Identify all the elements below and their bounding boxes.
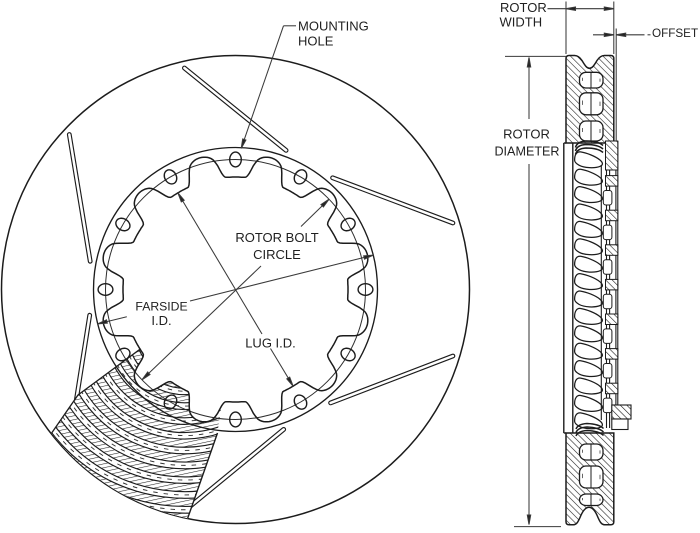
svg-text:OFFSET: OFFSET [652, 27, 698, 40]
svg-text:DIAMETER: DIAMETER [494, 144, 559, 158]
svg-text:WIDTH: WIDTH [500, 15, 543, 30]
svg-text:LUG I.D.: LUG I.D. [245, 335, 296, 350]
svg-text:CIRCLE: CIRCLE [253, 247, 301, 262]
svg-text:ROTOR: ROTOR [500, 0, 547, 15]
svg-text:FARSIDE: FARSIDE [135, 300, 187, 314]
svg-text:MOUNTING: MOUNTING [298, 18, 369, 33]
svg-text:I.D.: I.D. [151, 313, 171, 328]
svg-text:ROTOR: ROTOR [503, 126, 550, 141]
svg-text:HOLE: HOLE [298, 33, 334, 48]
svg-text:ROTOR BOLT: ROTOR BOLT [235, 230, 318, 245]
